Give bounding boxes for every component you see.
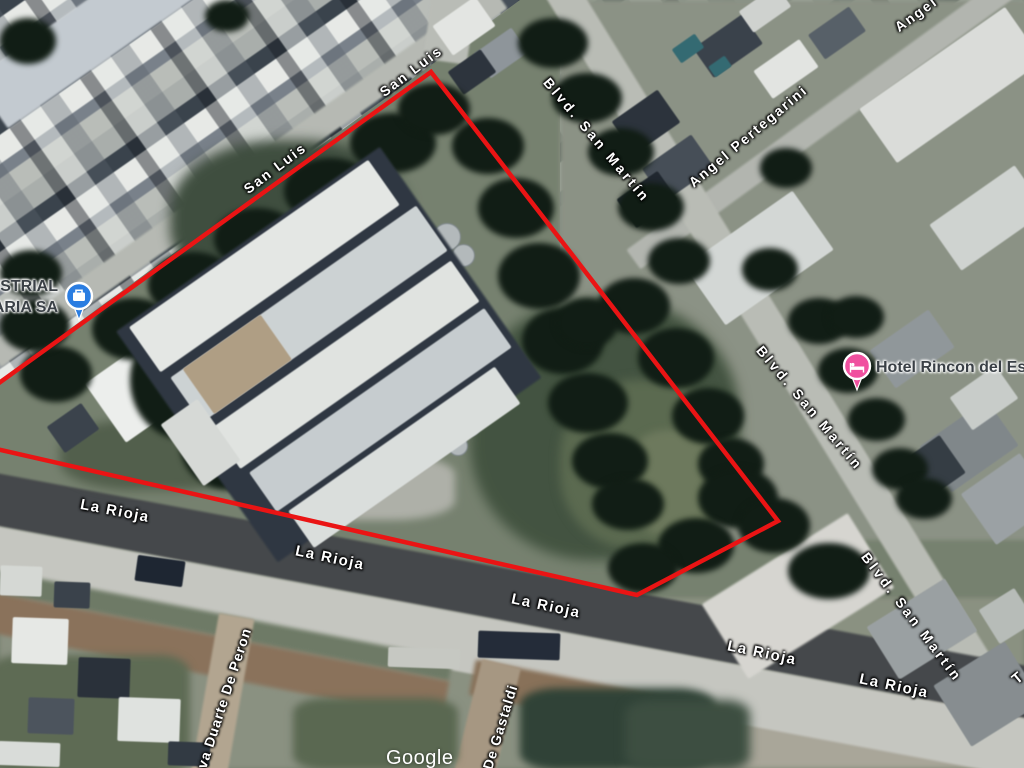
- street-label-la-rioja: La Rioja: [294, 542, 366, 573]
- street-label-la-rioja: La Rioja: [858, 670, 930, 701]
- street-label-san-luis: San Luis: [240, 139, 309, 197]
- briefcase-pin-icon: [62, 281, 96, 323]
- street-label-blvd-san-mart-n: Blvd. San Martín: [540, 74, 654, 205]
- poi-label-industrial-line2: ARIA SA: [0, 297, 58, 318]
- industrial-poi-marker[interactable]: [62, 281, 96, 328]
- street-label-t: T: [1009, 668, 1024, 688]
- street-label-angel-pertegarini: Angel Pertegarini: [685, 82, 810, 191]
- map-labels: USTRIAL ARIA SA Hotel Rincon del Este Go: [0, 0, 1024, 768]
- satellite-map[interactable]: USTRIAL ARIA SA Hotel Rincon del Este Go: [0, 0, 1024, 768]
- street-label-de-gastaldi: De Gastaldi: [479, 683, 520, 768]
- hotel-poi-marker[interactable]: [840, 351, 874, 398]
- poi-label-industrial-line1: USTRIAL: [0, 276, 58, 297]
- google-watermark: Google: [386, 747, 454, 768]
- street-label-san-luis: San Luis: [376, 42, 445, 100]
- poi-label-industrial[interactable]: USTRIAL ARIA SA: [0, 276, 58, 318]
- poi-label-hotel[interactable]: Hotel Rincon del Este: [876, 357, 1024, 378]
- bed-pin-icon: [840, 351, 874, 393]
- street-label-blvd-san-mart-n: Blvd. San Martín: [858, 549, 966, 685]
- street-label-angel: Angel: [892, 0, 941, 35]
- street-label-va-duarte-de-peron: va Duarte De Peron: [194, 626, 255, 768]
- street-label-la-rioja: La Rioja: [79, 496, 151, 526]
- street-label-la-rioja: La Rioja: [726, 637, 798, 668]
- street-label-la-rioja: La Rioja: [510, 590, 582, 621]
